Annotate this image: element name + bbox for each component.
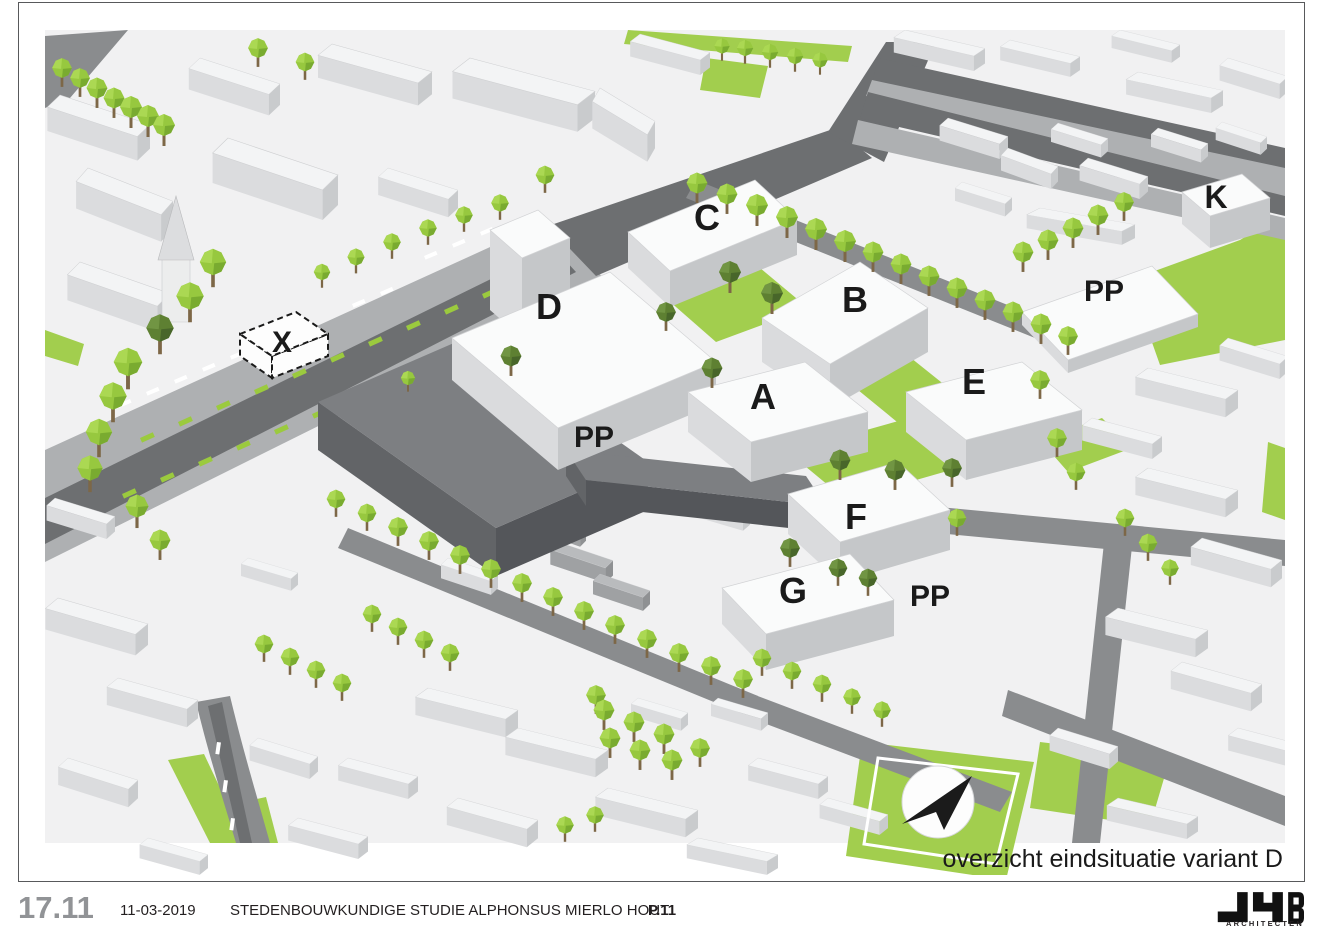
building-label-C: C [694,197,720,238]
parking-label-PP-1: PP [1084,275,1124,308]
building-label-X: X [272,326,292,359]
building-label-B: B [842,279,868,320]
footer-title: STEDENBOUWKUNDIGE STUDIE ALPHONSUS MIERL… [230,902,669,919]
footer-date: 11-03-2019 [120,902,196,919]
parking-label-PP-2: PP [574,421,614,454]
parking-label-PP-3: PP [910,580,950,613]
building-label-G: G [779,570,807,611]
figure-number: 17.11 [18,890,94,926]
building-label-E: E [962,361,986,402]
north-arrow [902,766,974,838]
site-plan-map: C D B K PP A E X PP F G PP [45,30,1285,875]
logo-subtext: ARCHITECTEN [1216,919,1304,928]
building-label-K: K [1204,179,1227,215]
map-caption: overzicht eindsituatie variant D [943,845,1283,874]
footer-page-number: P.11 [648,902,676,919]
building-label-F: F [845,496,867,537]
page: { "page": { "caption": "overzicht eindsi… [0,0,1320,942]
map-area: C D B K PP A E X PP F G PP [45,30,1285,875]
footer: 17.11 11-03-2019 STEDENBOUWKUNDIGE STUDI… [0,886,1320,942]
building-label-A: A [750,376,776,417]
building-label-D: D [536,286,562,327]
